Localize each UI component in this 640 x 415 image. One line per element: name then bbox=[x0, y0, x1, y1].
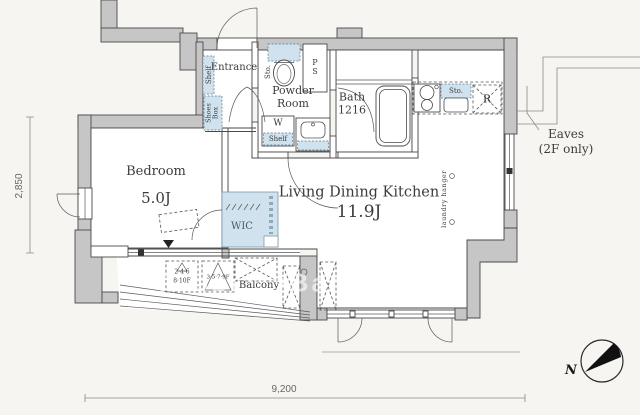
room-label-entrance: Entrance bbox=[211, 62, 257, 74]
room-label-bedroom: Bedroom bbox=[126, 164, 186, 180]
note-partition-a1: 2·4·6 bbox=[174, 268, 189, 275]
label-shoes-box: Shoes Box bbox=[206, 101, 221, 125]
compass-icon bbox=[581, 340, 623, 382]
label-pipe-space: PS bbox=[311, 58, 320, 76]
note-eaves-1: Eaves bbox=[548, 127, 584, 141]
sink-icon bbox=[444, 98, 468, 112]
note-partition-b: 3·5·7·9F bbox=[206, 275, 229, 282]
floorplan-page: PropertyBank Entrance Powder Room Bath 1… bbox=[0, 0, 640, 415]
label-laundry-hanger: laundry hanger bbox=[441, 170, 449, 228]
bedroom-area bbox=[91, 128, 222, 248]
eaves-leader-line bbox=[527, 86, 539, 130]
room-size-ldk: 11.9J bbox=[337, 202, 382, 222]
ldk-bottom-window bbox=[327, 310, 455, 342]
toilet-icon bbox=[274, 60, 295, 86]
room-size-bath: 1216 bbox=[338, 103, 366, 116]
room-size-bedroom: 5.0J bbox=[141, 189, 171, 207]
room-label-powder: Powder Room bbox=[264, 84, 322, 110]
label-kitchen-storage: Sto. bbox=[449, 87, 463, 95]
note-partition-a2: 8·10F bbox=[173, 277, 191, 284]
label-entrance-shelf: Shelf bbox=[204, 66, 212, 84]
terrace-door-swing bbox=[428, 318, 452, 342]
label-refrigerator: R bbox=[483, 92, 491, 105]
label-washer: W bbox=[273, 119, 282, 130]
compass-north-label: N bbox=[565, 363, 577, 379]
washbasin-icon bbox=[296, 118, 330, 151]
toilet-storage-shelf bbox=[268, 44, 300, 61]
bathtub-icon bbox=[376, 86, 410, 146]
wic-closet bbox=[222, 192, 278, 247]
dimension-vertical: 2,850 bbox=[14, 173, 26, 198]
floorplan-drawing bbox=[0, 0, 640, 415]
room-label-ldk: Living Dining Kitchen bbox=[279, 184, 439, 201]
stove-icon bbox=[414, 84, 440, 112]
label-washer-shelf: Shelf bbox=[269, 135, 287, 143]
bedroom-side-window bbox=[57, 188, 92, 219]
label-toilet-storage: Sto. bbox=[264, 65, 272, 79]
ldk-side-window bbox=[505, 134, 514, 210]
dimension-horizontal: 9,200 bbox=[271, 384, 296, 396]
room-label-bath: Bath bbox=[339, 90, 365, 103]
room-label-wic: WIC bbox=[231, 221, 253, 233]
terrace-door-swing bbox=[338, 318, 362, 342]
entrance-door-opening bbox=[217, 38, 257, 50]
room-label-balcony: Balcony bbox=[239, 280, 279, 292]
vertical-dimension-line bbox=[26, 117, 34, 253]
horizontal-dimension-line bbox=[85, 394, 525, 402]
note-eaves-2: (2F only) bbox=[539, 142, 594, 156]
